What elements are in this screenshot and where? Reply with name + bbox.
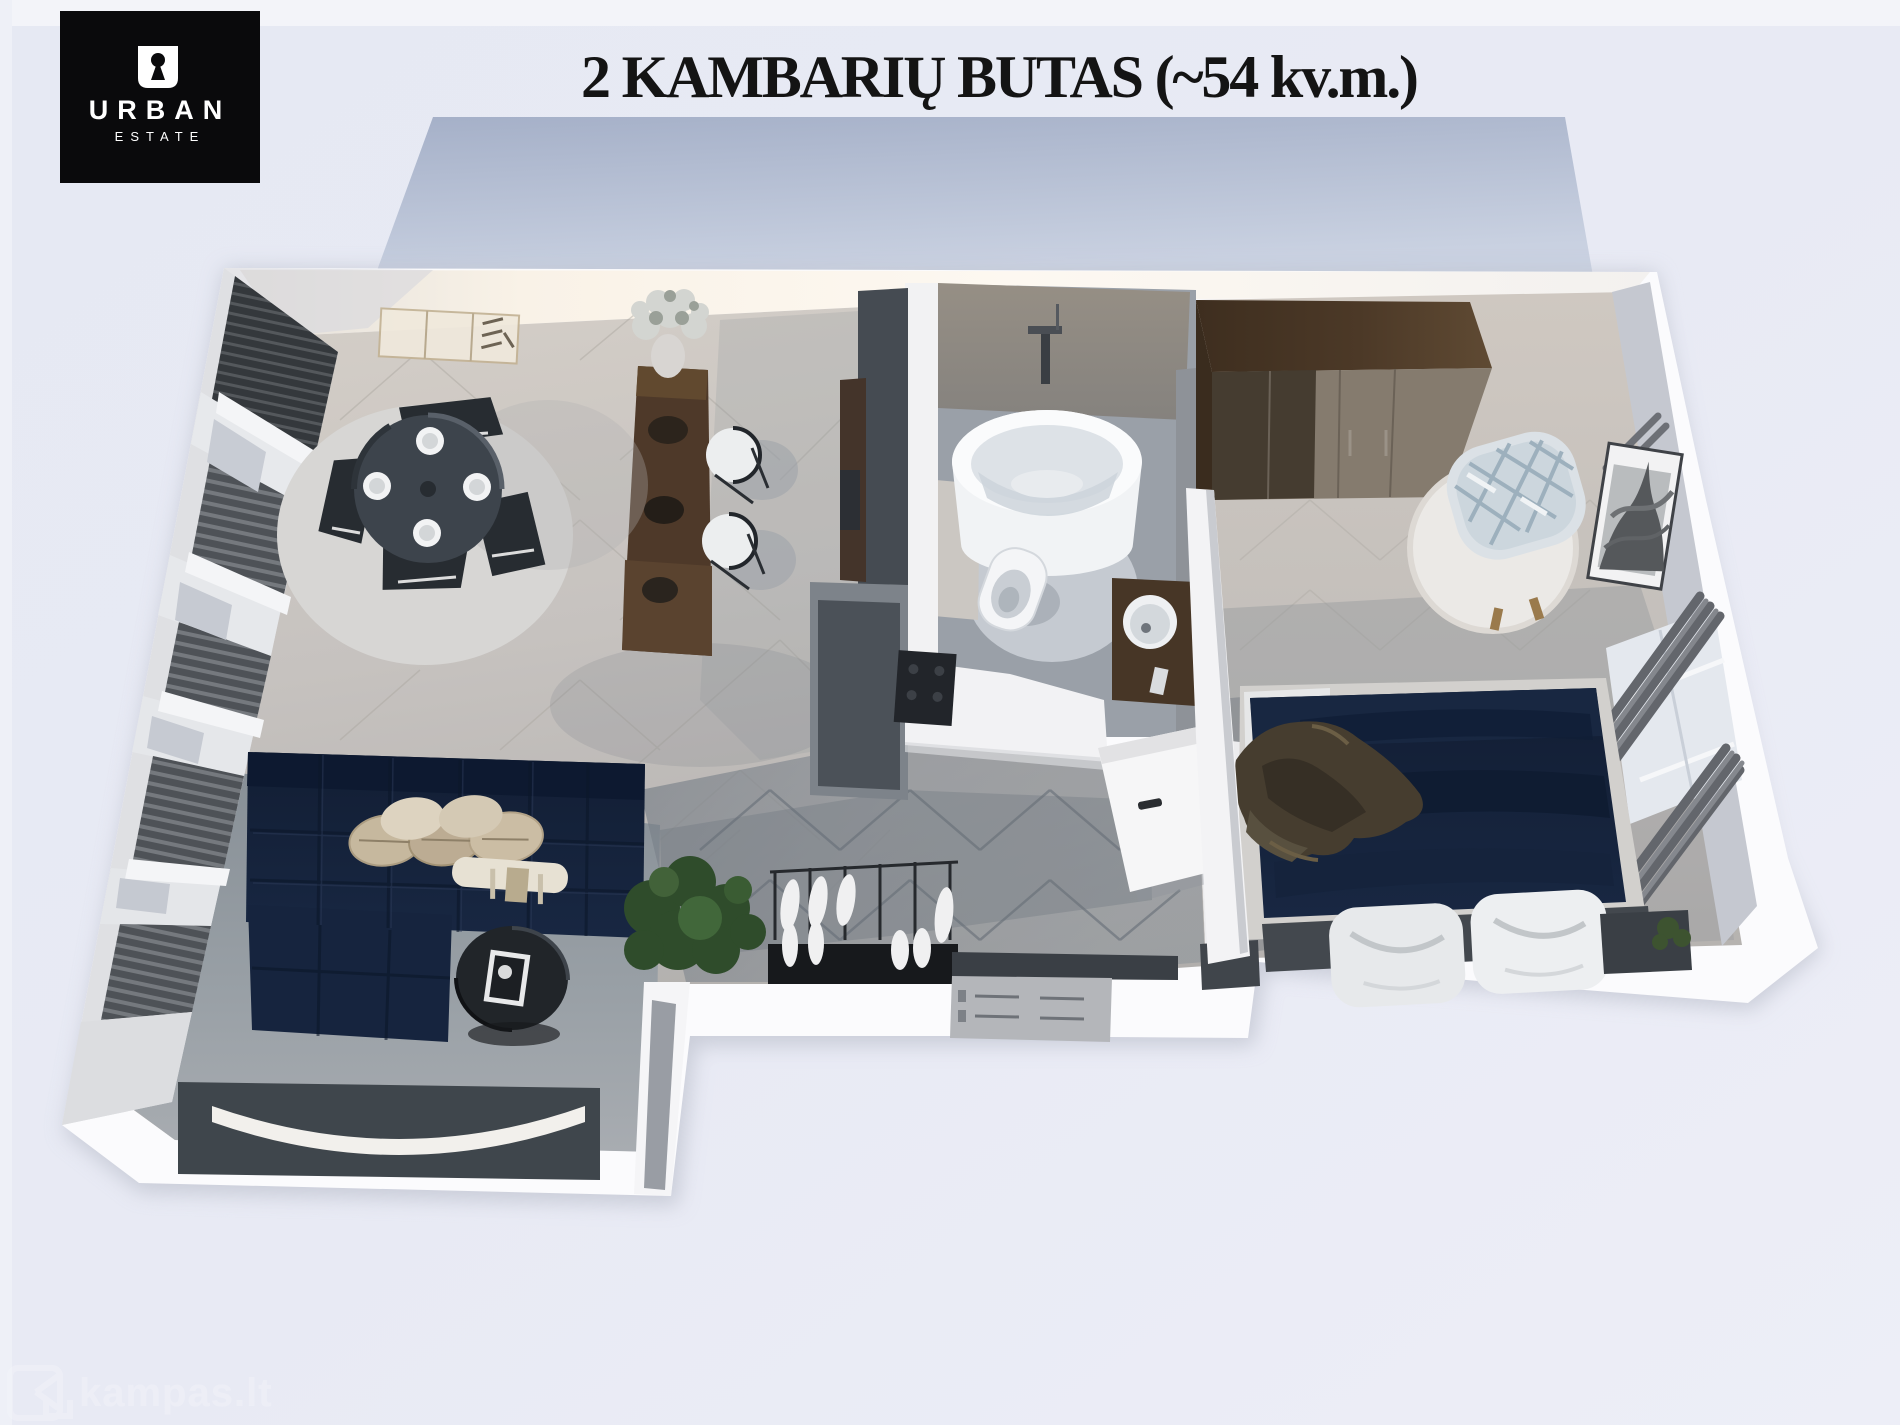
svg-text:URBAN: URBAN (89, 95, 232, 125)
svg-text:kampas.lt: kampas.lt (79, 1371, 273, 1415)
svg-text:ESTATE: ESTATE (115, 129, 206, 144)
svg-text:2 KAMBARIŲ BUTAS (~54 kv.m.): 2 KAMBARIŲ BUTAS (~54 kv.m.) (581, 44, 1419, 110)
